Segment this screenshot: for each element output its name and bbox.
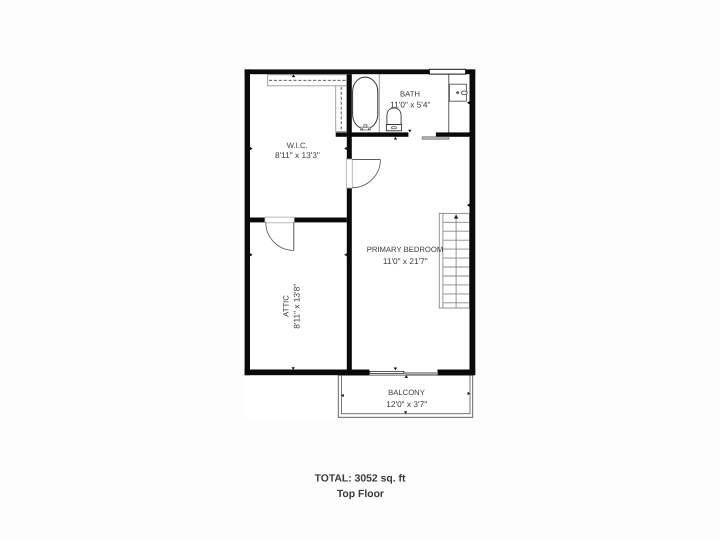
svg-text:BALCONY: BALCONY (388, 388, 425, 397)
svg-text:12'0" x 3'7": 12'0" x 3'7" (386, 399, 427, 409)
svg-text:8'11" x 13'8": 8'11" x 13'8" (292, 284, 302, 329)
svg-text:BATH: BATH (400, 90, 420, 99)
svg-text:PRIMARY BEDROOM: PRIMARY BEDROOM (367, 245, 444, 254)
svg-text:W.I.C.: W.I.C. (287, 141, 308, 150)
svg-text:Top Floor: Top Floor (337, 489, 384, 500)
svg-text:8'11" x 13'3": 8'11" x 13'3" (275, 150, 320, 160)
svg-text:11'0" x 5'4": 11'0" x 5'4" (390, 100, 430, 110)
svg-text:ATTIC: ATTIC (281, 295, 290, 317)
svg-text:TOTAL: 3052 sq. ft: TOTAL: 3052 sq. ft (315, 473, 406, 484)
svg-text:11'0" x 21'7": 11'0" x 21'7" (383, 256, 428, 266)
